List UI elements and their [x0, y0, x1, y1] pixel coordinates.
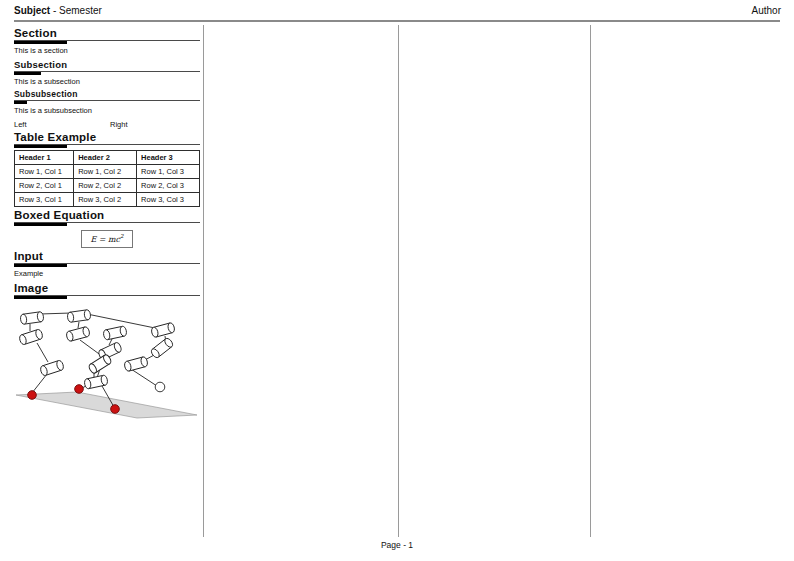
- ground-plane: [16, 392, 197, 418]
- title-separator: -: [50, 5, 59, 16]
- table-header-cell: Header 2: [74, 150, 137, 164]
- input-section-heading: Input: [14, 250, 200, 262]
- content-column: Section This is a section Subsection Thi…: [14, 25, 200, 423]
- column-separator: [398, 25, 399, 537]
- contact-point: [28, 391, 37, 400]
- figure-container: [14, 301, 200, 423]
- cylinder-joint: [20, 312, 44, 325]
- page-number: Page - 1: [0, 540, 794, 550]
- subsection-body: This is a subsection: [14, 78, 200, 87]
- subsection-rule-accent: [14, 72, 41, 75]
- table-cell: Row 3, Col 1: [15, 192, 74, 206]
- table-header-cell: Header 1: [15, 150, 74, 164]
- cylinder-joint: [124, 357, 149, 373]
- table-header-row: Header 1 Header 2 Header 3: [15, 150, 200, 164]
- right-column-text: Right: [110, 120, 128, 129]
- column-separator: [590, 25, 591, 537]
- doc-semester: Semester: [59, 5, 102, 16]
- section-body: This is a section: [14, 47, 200, 56]
- free-foot: [155, 383, 165, 393]
- document-page: Subject - Semester Author Section This i…: [0, 0, 794, 561]
- cylinder-joint: [19, 329, 44, 346]
- table-row: Row 1, Col 1 Row 1, Col 2 Row 1, Col 3: [15, 164, 200, 178]
- image-section-rule-accent: [14, 296, 67, 299]
- table-section-heading: Table Example: [14, 131, 200, 143]
- subsubsection-heading: Subsubsection: [14, 90, 200, 99]
- boxed-equation: E = mc2: [81, 230, 132, 248]
- table-header-cell: Header 3: [137, 150, 200, 164]
- contact-point: [75, 385, 84, 394]
- section-rule-accent: [14, 41, 67, 44]
- example-table: Header 1 Header 2 Header 3 Row 1, Col 1 …: [14, 150, 200, 207]
- table-cell: Row 2, Col 3: [137, 178, 200, 192]
- equation-section-heading: Boxed Equation: [14, 209, 200, 221]
- cylinder-joint: [40, 360, 65, 377]
- image-section-heading: Image: [14, 282, 200, 294]
- cylinder-joint: [67, 310, 91, 323]
- table-section-rule: [14, 144, 200, 148]
- table-cell: Row 1, Col 3: [137, 164, 200, 178]
- cylinder-joint: [151, 323, 176, 339]
- subsubsection-rule: [14, 100, 200, 104]
- robot-linkage-figure: [14, 301, 200, 423]
- table-row: Row 3, Col 1 Row 3, Col 2 Row 3, Col 3: [15, 192, 200, 206]
- table-cell: Row 2, Col 1: [15, 178, 74, 192]
- equation-container: E = mc2: [14, 230, 200, 248]
- section-rule: [14, 40, 200, 44]
- document-title: Subject - Semester: [14, 5, 102, 16]
- table-cell: Row 2, Col 2: [74, 178, 137, 192]
- table-section-rule-accent: [14, 145, 67, 148]
- cylinder-joint: [66, 327, 91, 343]
- header-rule: [14, 20, 780, 22]
- image-section-rule: [14, 295, 200, 299]
- column-separator: [203, 25, 204, 537]
- subsection-heading: Subsection: [14, 60, 200, 70]
- equation-text: E = mc: [90, 235, 120, 244]
- equation-section-rule: [14, 222, 200, 226]
- table-row: Row 2, Col 1 Row 2, Col 2 Row 2, Col 3: [15, 178, 200, 192]
- table-cell: Row 3, Col 2: [74, 192, 137, 206]
- cylinder-joint: [150, 337, 174, 359]
- left-column-text: Left: [14, 120, 110, 129]
- subsubsection-body: This is a subsubsection: [14, 107, 200, 116]
- table-cell: Row 1, Col 1: [15, 164, 74, 178]
- table-cell: Row 1, Col 2: [74, 164, 137, 178]
- cylinder-joint: [103, 326, 128, 341]
- section-heading: Section: [14, 27, 200, 39]
- doc-author: Author: [752, 5, 781, 16]
- equation-section-rule-accent: [14, 223, 67, 226]
- subsubsection-rule-accent: [14, 101, 27, 104]
- cylinder-joint: [84, 375, 109, 390]
- equation-exponent: 2: [120, 233, 124, 239]
- two-column-row: Left Right: [14, 120, 200, 129]
- contact-point: [111, 405, 120, 414]
- input-body: Example: [14, 270, 200, 279]
- doc-subject: Subject: [14, 5, 50, 16]
- subsection-rule: [14, 71, 200, 75]
- input-section-rule: [14, 263, 200, 267]
- table-cell: Row 3, Col 3: [137, 192, 200, 206]
- input-section-rule-accent: [14, 264, 67, 267]
- cylinder-joints: [19, 310, 176, 390]
